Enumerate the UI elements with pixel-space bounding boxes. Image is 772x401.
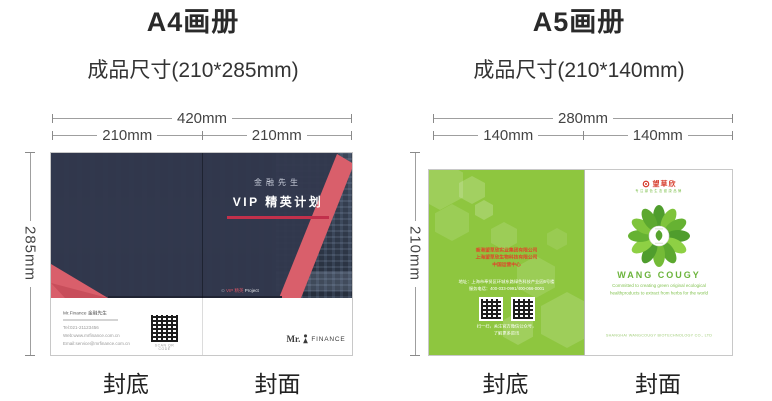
- contact-line: Web:www.mrfinance.com.cn: [63, 331, 153, 339]
- logo-prefix: Mr.: [286, 334, 300, 344]
- a5-left-width-value: 140mm: [478, 127, 538, 144]
- slogan-line: Committed to creating green original eco…: [584, 282, 733, 289]
- contact-company-name: Mr.Finance 金融先生: [63, 309, 153, 318]
- address-phone-block: 地址：上海市奉贤区环城东路绿色科技产业园6号楼 服务电话：400-033-099…: [429, 278, 584, 292]
- a4-front-cover-label: 封面: [202, 365, 353, 399]
- leaf-wreath-icon: [627, 204, 691, 268]
- a4-total-width-dimension: 420mm: [52, 110, 352, 126]
- dim-line: [415, 287, 416, 355]
- dim-line: [53, 135, 97, 136]
- a4-right-width-value: 210mm: [247, 127, 307, 144]
- dim-line: [415, 153, 416, 221]
- qr-code-icon: [151, 315, 178, 342]
- wechat-caption-block: 扫一扫，关注官方微信公众号， 了解更多资讯: [429, 323, 584, 337]
- a4-total-width-value: 420mm: [172, 110, 232, 127]
- hexagon-decoration: [475, 200, 493, 220]
- dim-line: [203, 135, 247, 136]
- dim-line: [434, 135, 478, 136]
- a5-total-width-dimension: 280mm: [433, 110, 733, 126]
- dim-line: [232, 118, 351, 119]
- caption-line: 扫一扫，关注官方微信公众号，: [429, 323, 584, 330]
- a4-height-value: 285mm: [22, 221, 39, 286]
- dim-line: [307, 135, 351, 136]
- a5-finished-size: 成品尺寸(210*140mm): [386, 54, 772, 84]
- a5-panel-title: A5画册: [386, 0, 772, 39]
- target-icon: ⊙: [221, 288, 225, 293]
- spread-fold-line: [202, 153, 203, 298]
- qr-code-icon: [511, 297, 535, 321]
- booklet-size-infographic: A4画册 成品尺寸(210*285mm) 420mm 210mm 210mm 2…: [0, 0, 772, 401]
- dim-tick: [410, 355, 420, 356]
- title-underline: [227, 216, 329, 219]
- tagline-white-text: Project: [245, 288, 259, 293]
- hexagon-decoration: [429, 170, 463, 210]
- tagline-red-text: VIP 精英: [226, 288, 243, 293]
- a4-half-width-dimension: 210mm 210mm: [52, 127, 352, 143]
- dim-line: [434, 118, 553, 119]
- dim-line: [30, 287, 31, 355]
- address-line: 地址：上海市奉贤区环城东路绿色科技产业园6号楼: [429, 278, 584, 285]
- spread-fold-line: [584, 170, 585, 356]
- a4-finished-size: 成品尺寸(210*285mm): [0, 54, 386, 84]
- contact-line: Tel:021-21123456: [63, 323, 153, 331]
- dim-line: [688, 135, 732, 136]
- dim-line: [157, 135, 201, 136]
- company-name-line: 香港望草欣实业集团有限公司: [429, 247, 584, 254]
- a5-front-cover-label: 封面: [583, 365, 733, 399]
- contact-line: Email:service@mrfinance.com.cn: [63, 339, 153, 347]
- a5-total-width-value: 280mm: [553, 110, 613, 127]
- hexagon-decoration: [491, 222, 517, 250]
- panel-bottom-edge: [108, 296, 282, 298]
- qr-pattern: [513, 299, 533, 319]
- green-back-cover: 香港望草欣实业集团有限公司 上海望草欣生物科技有限公司 中国运营中心 地址：上海…: [429, 170, 584, 356]
- brand-tagline: 专注绿色生态健康品牌: [584, 188, 733, 193]
- person-icon: [302, 334, 309, 344]
- dim-line: [538, 135, 582, 136]
- brand-small-title: 金融先生: [202, 177, 353, 188]
- a5-right-width-value: 140mm: [628, 127, 688, 144]
- company-name-line: 上海望草欣生物科技有限公司: [429, 254, 584, 261]
- dim-tick: [732, 131, 733, 140]
- brand-english-name: WANG COUGY: [584, 270, 733, 280]
- back-cover-contact-block: Mr.Finance 金融先生 Tel:021-21123456 Web:www…: [63, 309, 153, 348]
- a5-back-cover-label: 封底: [428, 365, 583, 399]
- a4-left-width-value: 210mm: [97, 127, 157, 144]
- brand-emblem-icon: [642, 180, 650, 188]
- a5-height-value: 210mm: [407, 221, 424, 286]
- dim-line: [53, 118, 172, 119]
- caption-line: 了解更多资讯: [429, 330, 584, 337]
- spread-fold-line: [202, 298, 203, 356]
- company-names-block: 香港望草欣实业集团有限公司 上海望草欣生物科技有限公司 中国运营中心: [429, 247, 584, 268]
- a5-cover-spread-image: 香港望草欣实业集团有限公司 上海望草欣生物科技有限公司 中国运营中心 地址：上海…: [428, 169, 733, 356]
- contact-divider: [63, 320, 118, 321]
- company-name-line: 中国运营中心: [429, 261, 584, 268]
- front-cover-tagline: ⊙ VIP 精英 Project: [221, 287, 291, 294]
- qr-pattern: [481, 299, 501, 319]
- dim-tick: [351, 131, 352, 140]
- a5-height-dimension: 210mm: [407, 152, 423, 356]
- a4-cover-spread-image: 金融先生 VIP 精英计划 ⊙ VIP 精英 Project Mr.Financ…: [50, 152, 353, 356]
- front-cover-title-block: 金融先生 VIP 精英计划: [202, 177, 353, 219]
- a4-back-cover-label: 封底: [50, 365, 202, 399]
- brand-main-title: VIP 精英计划: [202, 193, 353, 210]
- a4-panel-title: A4画册: [0, 0, 386, 39]
- dim-line: [30, 153, 31, 221]
- dim-line: [613, 118, 732, 119]
- a5-half-width-dimension: 140mm 140mm: [433, 127, 733, 143]
- company-english-name: SHANGHAI WANGCOUGY BIOTECHNOLOGY CO., LT…: [584, 333, 733, 338]
- brand-slogan: Committed to creating green original eco…: [584, 282, 733, 297]
- qr-code-row: [429, 297, 584, 321]
- dim-tick: [351, 114, 352, 123]
- qr-caption: SCAN QR CODE: [150, 344, 179, 351]
- dim-tick: [25, 355, 35, 356]
- phone-line: 服务电话：400-033-0991/400-066-0001: [429, 285, 584, 292]
- logo-suffix: FINANCE: [311, 336, 345, 343]
- dim-line: [584, 135, 628, 136]
- dim-tick: [732, 114, 733, 123]
- slogan-line: healthproducts to extract from herbs for…: [584, 289, 733, 296]
- a4-height-dimension: 285mm: [22, 152, 38, 356]
- mr-finance-logo: Mr. FINANCE: [284, 332, 348, 346]
- qr-code-icon: [479, 297, 503, 321]
